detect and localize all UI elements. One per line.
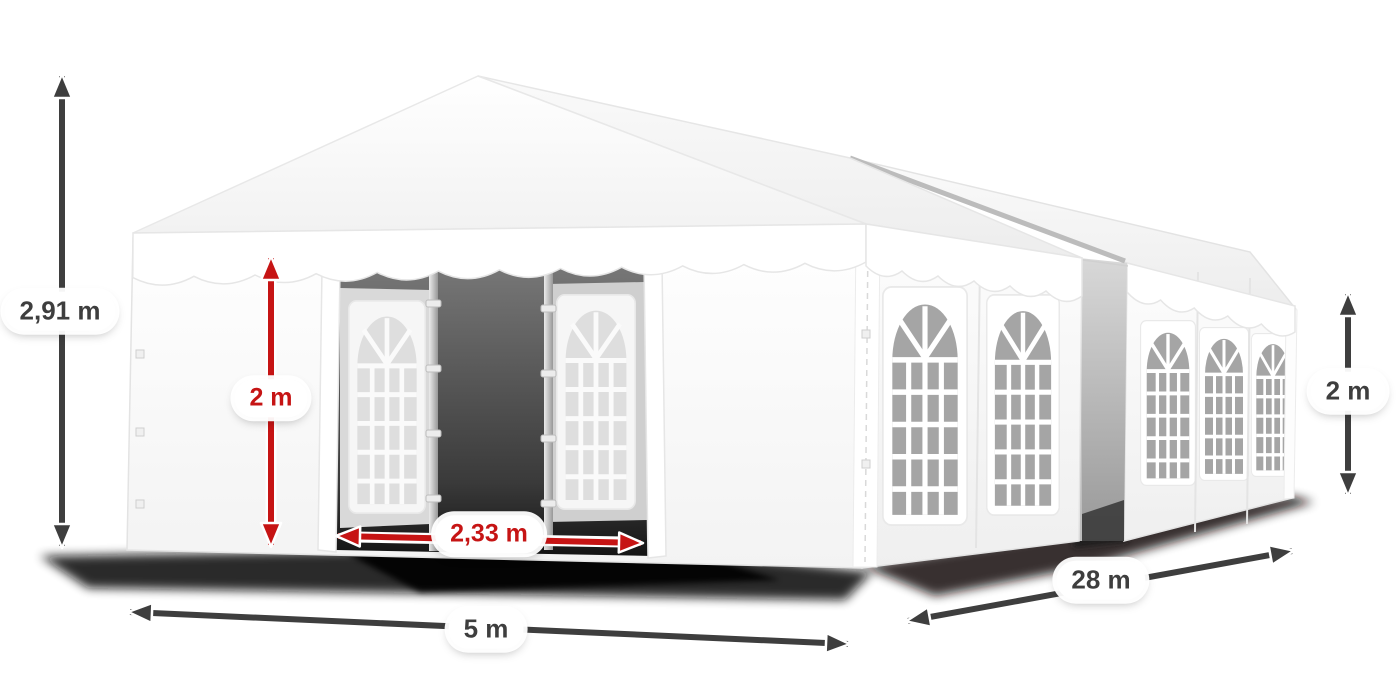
entrance-width-value: 2,33 m <box>450 519 528 547</box>
length-label: 28 m <box>1056 561 1145 600</box>
door-jamb <box>644 262 666 558</box>
frame-pole <box>429 265 438 551</box>
side-wall-height-value: 2 m <box>1326 376 1371 406</box>
total-height-label: 2,91 m <box>5 292 116 331</box>
entrance-width-label: 2,33 m <box>435 515 543 553</box>
arch-window <box>1141 321 1196 486</box>
length-value: 28 m <box>1071 565 1130 595</box>
side-clear-height-value: 2 m <box>249 383 292 411</box>
span-width-label: 5 m <box>449 610 524 649</box>
side-wall-height-label: 2 m <box>1311 372 1386 411</box>
door-jamb <box>318 268 340 552</box>
arch-window <box>1200 328 1249 481</box>
arch-window <box>883 287 967 525</box>
span-width-value: 5 m <box>464 614 509 644</box>
product-dimension-diagram: 2,91 m 2 m 2,33 m 5 m 28 m 2 m <box>0 0 1400 700</box>
interior-arch-window <box>349 301 425 513</box>
arch-window <box>987 295 1060 515</box>
side-clear-height-label: 2 m <box>234 379 307 417</box>
total-height-value: 2,91 m <box>20 296 101 326</box>
tent-illustration <box>0 0 1400 700</box>
interior-arch-window <box>557 295 635 509</box>
